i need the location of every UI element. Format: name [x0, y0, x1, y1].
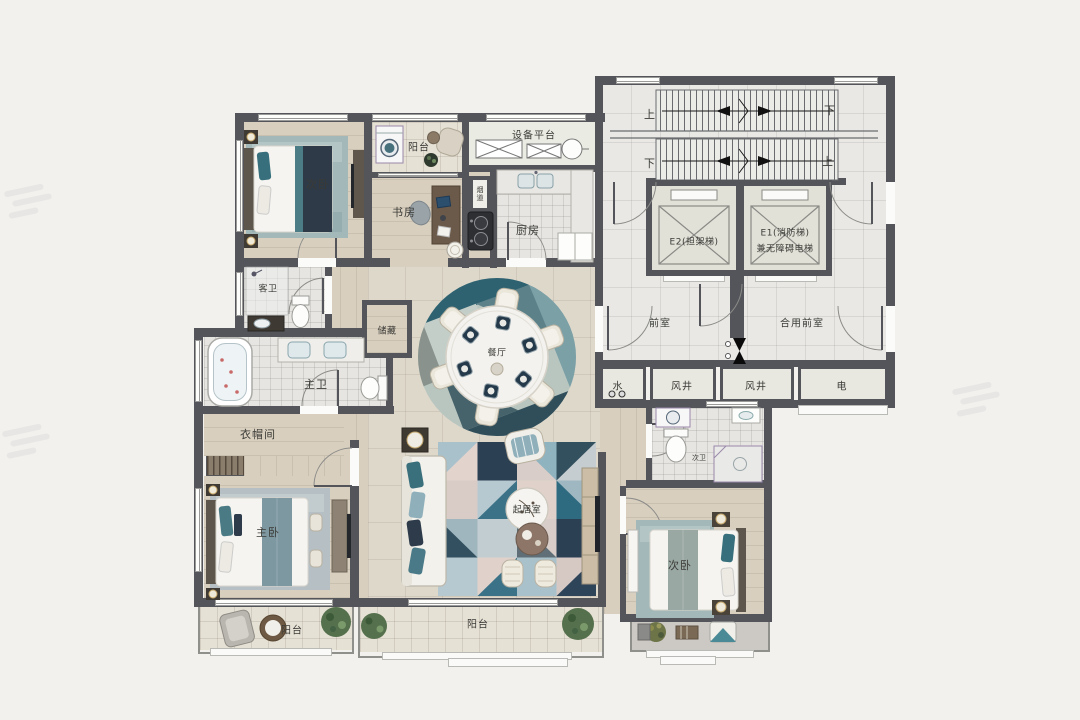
master-balcony-rail [198, 602, 354, 654]
window-sill [798, 405, 888, 415]
core-label-shared-front-room: 合用前室 [780, 315, 824, 330]
window [236, 272, 243, 316]
stair-label-up-right: 上 [822, 153, 834, 169]
elevator-label-e1-line1: E1(消防梯) [761, 226, 810, 239]
door-gap [620, 496, 626, 534]
room-label-cloak: 衣帽间 [240, 426, 276, 442]
entry-door-gap [595, 306, 603, 352]
wall [886, 76, 895, 408]
window [372, 114, 458, 121]
floor-second-bath [652, 408, 764, 482]
window [378, 173, 458, 177]
wall [194, 406, 394, 414]
wall [764, 404, 772, 622]
floor-study [372, 178, 462, 264]
window-sill [660, 656, 716, 665]
stair-label-down-left: 下 [644, 155, 656, 171]
wall [490, 168, 497, 268]
watermark [0, 420, 60, 460]
door-gap [325, 276, 332, 314]
room-label-balcony-top: 阳台 [408, 139, 430, 154]
wall [462, 113, 469, 173]
room-label-storage: 储藏 [377, 324, 396, 337]
stair-label-down-right: 下 [824, 102, 836, 118]
floor-plan-page: { "rooms": { "bedroom_top": "次卧", "balco… [0, 0, 1080, 720]
window-sill [448, 658, 568, 667]
watermark [2, 180, 62, 220]
window [195, 488, 202, 572]
wall [646, 178, 846, 185]
bay-window-rail [630, 620, 770, 652]
door-gap [298, 258, 336, 267]
wall [364, 113, 372, 265]
room-label-flue: 烟道 [475, 186, 485, 202]
floor-kitchen [497, 172, 593, 264]
room-label-south-balcony: 阳台 [467, 616, 489, 631]
door-gap [506, 258, 546, 267]
window [706, 401, 758, 407]
floor-guest-bath [244, 267, 325, 332]
room-label-equipment: 设备平台 [512, 127, 556, 142]
balcony-slider [215, 599, 333, 606]
wall [462, 172, 469, 268]
watermark [950, 378, 1010, 418]
door-gap [600, 408, 606, 452]
floor-master-bath [204, 334, 386, 408]
room-label-living: 起居室 [513, 503, 542, 516]
room-label-kitchen: 厨房 [516, 222, 540, 238]
window-sill [210, 648, 332, 656]
room-label-study: 书房 [392, 204, 416, 220]
door-gap [646, 424, 652, 458]
elevator-sill [755, 275, 817, 282]
opening [390, 258, 448, 267]
wall [595, 268, 603, 306]
window [616, 77, 660, 84]
window [195, 340, 202, 402]
elevator-sill [663, 275, 725, 282]
window [486, 114, 586, 121]
elevator-label-e2: E2(担架梯) [670, 235, 719, 248]
shaft-label-wind-1: 风井 [671, 378, 693, 393]
door-gap [886, 306, 895, 352]
room-label-guest-bath: 客卫 [258, 282, 277, 295]
room-label-master-bedroom: 主卧 [256, 524, 280, 540]
wall [462, 165, 602, 172]
shaft-label-wind-2: 风井 [745, 378, 767, 393]
wall [626, 480, 766, 488]
balcony-slider [408, 599, 558, 606]
room-label-second-bath: 次卫 [692, 453, 706, 463]
window [834, 77, 878, 84]
elevator-label-e1-line2: 兼无障碍电梯 [756, 242, 813, 255]
door-gap [886, 182, 895, 224]
room-label-bedroom-bottom: 次卧 [668, 557, 692, 573]
wall [626, 614, 772, 622]
room-label-dining: 餐厅 [487, 346, 506, 359]
floor-bedroom-bottom [626, 488, 764, 616]
shaft-label-water: 水 [613, 378, 624, 393]
wall [597, 360, 895, 367]
door-gap [350, 448, 359, 486]
room-label-bedroom-top: 次卧 [306, 176, 330, 192]
room-label-master-bath: 主卫 [304, 376, 328, 392]
shaft-label-electric: 电 [837, 378, 848, 393]
wall [730, 276, 744, 338]
core-label-front-room: 前室 [649, 315, 671, 330]
wall [598, 452, 606, 602]
room-label-master-balcony: 阳台 [281, 622, 303, 637]
floor-bedroom-top [244, 122, 364, 262]
window [258, 114, 348, 121]
floor-core [602, 84, 888, 362]
wall [194, 328, 370, 337]
door-gap [300, 406, 338, 414]
window [236, 140, 243, 232]
stair-label-up-left: 上 [644, 106, 656, 122]
wall [595, 113, 603, 268]
